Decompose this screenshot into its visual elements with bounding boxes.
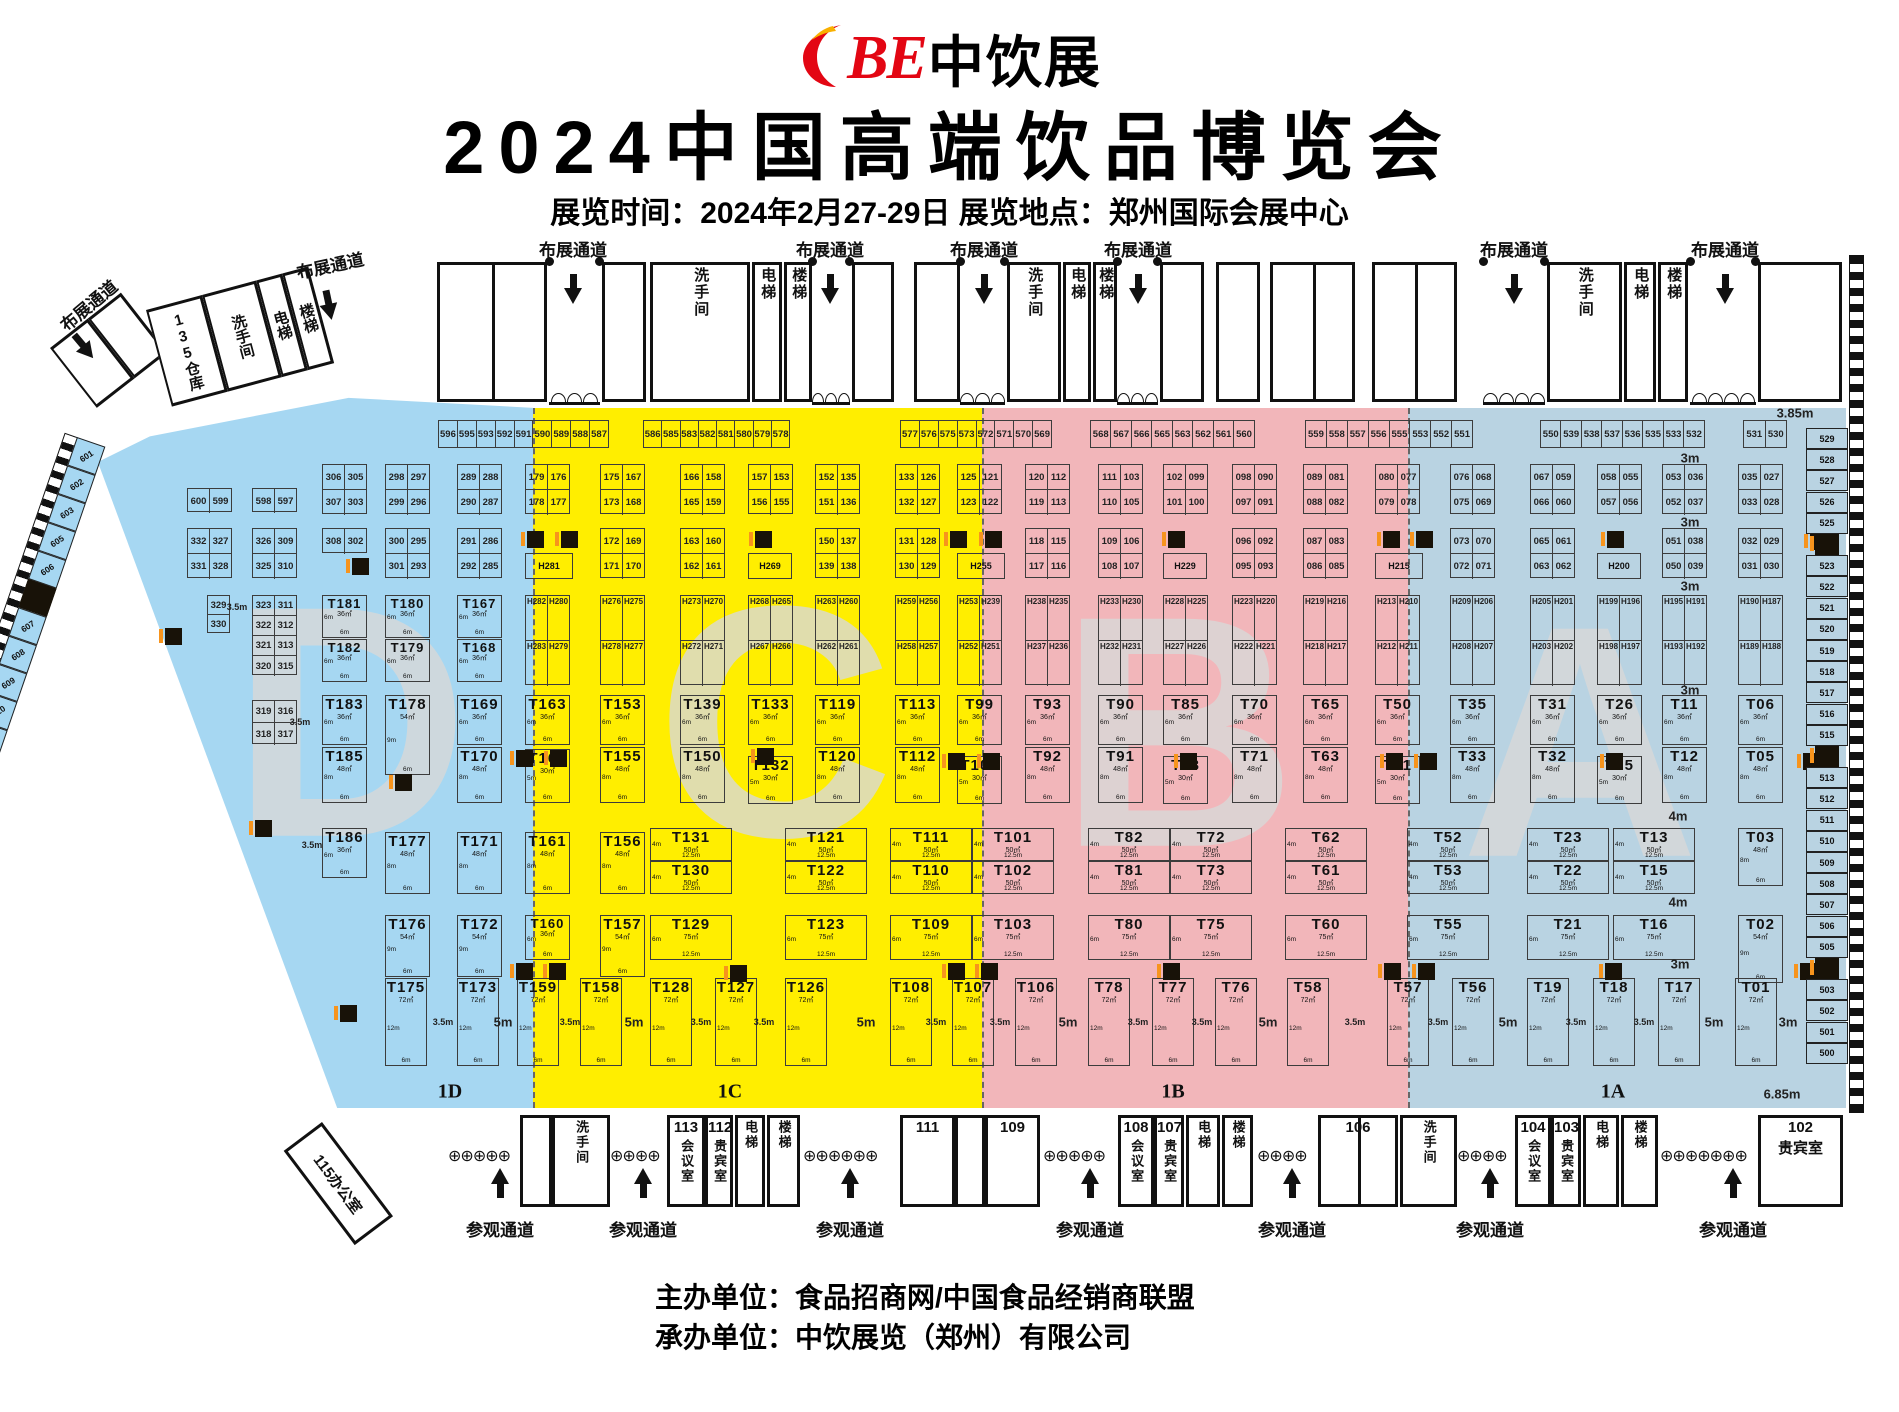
booth-depth: 4m xyxy=(1409,841,1418,848)
booth-area: 72㎡ xyxy=(891,997,931,1004)
booth-H193: H193 xyxy=(1663,641,1685,686)
booth-172: 172 xyxy=(601,529,623,553)
passage-label-setup: 布展通道 xyxy=(539,236,607,261)
booth-137: 137 xyxy=(838,529,859,553)
room-number: 108 xyxy=(1121,1120,1151,1137)
pillar-icon xyxy=(395,774,412,791)
booth-H268: H268 xyxy=(749,596,771,640)
booth-frontage: 12.5m xyxy=(1408,885,1488,892)
booth-081: 081 xyxy=(1326,465,1347,489)
booth-590: 590 xyxy=(533,421,552,447)
booth-117: 117 xyxy=(1026,554,1048,579)
booth-T63: T6348㎡8m6m xyxy=(1303,747,1348,803)
booth-number: T73 xyxy=(1171,863,1251,880)
booth-depth: 8m xyxy=(1740,774,1749,781)
booth-frontage: 6m xyxy=(1099,736,1142,743)
booth-T128: T12872㎡12m6m xyxy=(650,978,692,1066)
booth-066: 066 xyxy=(1531,490,1553,515)
booth-block: 308302 xyxy=(322,528,367,553)
booth-area: 72㎡ xyxy=(518,997,558,1004)
booth-529: 529 xyxy=(1806,428,1848,449)
booth-number: T32 xyxy=(1531,749,1574,766)
booth-frontage: 6m xyxy=(651,1057,691,1064)
aisle-dimension: 3m xyxy=(1671,957,1690,972)
booth-133: 133 xyxy=(896,465,918,489)
pillar-icon xyxy=(549,963,566,980)
booth-strip: 596595593592591590589588587 xyxy=(438,420,609,448)
room-label: 楼梯 xyxy=(1230,1120,1244,1150)
booth-frontage: 12.5m xyxy=(1286,951,1366,958)
booth-depth: 6m xyxy=(602,719,611,726)
booth-323: 323 xyxy=(253,596,275,615)
arrow-up-icon xyxy=(1724,1168,1742,1184)
booth-055: 055 xyxy=(1620,465,1641,489)
booth-028: 028 xyxy=(1761,490,1782,515)
booth-frontage: 6m xyxy=(323,794,366,801)
booth-depth: 6m xyxy=(1409,936,1418,943)
booth-136: 136 xyxy=(838,490,859,515)
booth-T06: T0636㎡6m6m xyxy=(1738,695,1783,745)
booth-block: 125121123122 xyxy=(957,464,1002,514)
booth-T111: T11150㎡4m12.5m xyxy=(890,828,972,861)
booth-block: 150137139138 xyxy=(815,528,860,578)
booth-171: 171 xyxy=(601,554,623,579)
booth-depth: 6m xyxy=(974,936,983,943)
booth-H203: H203 xyxy=(1531,641,1553,686)
booth-H273: H273 xyxy=(681,596,703,640)
booth-H231: H231 xyxy=(1121,641,1142,686)
booth-T19: T1972㎡12m6m xyxy=(1527,978,1569,1066)
booth-T155: T15548㎡8m6m xyxy=(600,747,645,803)
booth-number: T81 xyxy=(1089,863,1169,880)
room-number: 107 xyxy=(1157,1120,1181,1137)
booth-093: 093 xyxy=(1255,554,1276,579)
booth-557: 557 xyxy=(1348,421,1369,447)
booth-165: 165 xyxy=(681,490,703,515)
pillar-icon xyxy=(985,531,1002,548)
arrow-down-icon xyxy=(564,288,582,304)
booth-108: 108 xyxy=(1099,554,1121,579)
booth-number: T180 xyxy=(386,597,429,611)
booth-area: 48㎡ xyxy=(1739,766,1782,773)
booth-area: 30㎡ xyxy=(526,768,569,775)
booth-T11: T1136㎡6m6m xyxy=(1662,695,1707,745)
booth-517: 517 xyxy=(1806,682,1848,703)
booth-depth: 4m xyxy=(1287,841,1296,848)
booth-depth: 8m xyxy=(459,774,468,781)
booth-depth: 9m xyxy=(459,946,468,953)
booth-T169: T16936㎡6m6m xyxy=(457,695,502,745)
booth-T62: T6250㎡4m12.5m xyxy=(1285,828,1367,861)
booth-number: T55 xyxy=(1408,917,1488,934)
booth-H187: H187 xyxy=(1761,596,1782,640)
booth-number: T33 xyxy=(1451,749,1494,766)
booth-H230: H230 xyxy=(1121,596,1142,640)
booth-526: 526 xyxy=(1806,492,1848,513)
booth-frontage: 6m xyxy=(1531,794,1574,801)
pillar-icon xyxy=(948,963,965,980)
booth-depth: 6m xyxy=(817,719,826,726)
booth-depth: 8m xyxy=(1532,774,1541,781)
booth-block: 175167173168 xyxy=(600,464,645,514)
booth-frontage: 6m xyxy=(681,794,724,801)
booth-530: 530 xyxy=(1766,421,1787,447)
room-楼梯: 楼梯 xyxy=(1621,1115,1658,1207)
booth-579: 579 xyxy=(754,421,772,447)
booth-031: 031 xyxy=(1739,554,1761,579)
aisle-dimension: 5m xyxy=(1059,1015,1078,1030)
booth-area: 75㎡ xyxy=(1614,934,1694,941)
booth-H211: H211 xyxy=(1398,641,1419,686)
booth-051: 051 xyxy=(1663,529,1685,553)
booth-T90: T9036㎡6m6m xyxy=(1098,695,1143,745)
booth-depth: 6m xyxy=(892,936,901,943)
booth-320: 320 xyxy=(253,656,275,676)
booth-depth: 8m xyxy=(324,774,333,781)
booth-number: T107 xyxy=(953,980,993,997)
booth-number: T91 xyxy=(1099,749,1142,766)
booth-frontage: 6m xyxy=(681,736,724,743)
arrow-down-icon xyxy=(1716,288,1734,304)
booth-depth: 4m xyxy=(892,841,901,848)
hall-label-1A: 1A xyxy=(1601,1081,1625,1104)
booth-T163: T16336㎡6m6m xyxy=(525,695,570,745)
booth-area: 48㎡ xyxy=(601,851,644,858)
room-empty xyxy=(1270,262,1355,402)
booth-061: 061 xyxy=(1553,529,1574,553)
booth-T50: T5036㎡6m6m xyxy=(1375,695,1420,745)
booth-number: T161 xyxy=(526,834,569,851)
booth-570: 570 xyxy=(1014,421,1033,447)
booth-535: 535 xyxy=(1643,421,1663,447)
booth-123: 123 xyxy=(958,490,980,515)
booth-511: 511 xyxy=(1806,810,1848,831)
booth-T76: T7672㎡12m6m xyxy=(1215,978,1257,1066)
booth-area: 75㎡ xyxy=(1089,934,1169,941)
booth-115: 115 xyxy=(1048,529,1069,553)
booth-071: 071 xyxy=(1473,554,1494,579)
booth-depth: 6m xyxy=(387,658,396,665)
booth-frontage: 6m xyxy=(526,885,569,892)
room-label: 135仓库 xyxy=(168,310,204,392)
booth-T175: T17572㎡12m6m xyxy=(385,978,427,1066)
booth-083: 083 xyxy=(1326,529,1347,553)
booth-078: 078 xyxy=(1398,490,1419,515)
booth-110: 110 xyxy=(1099,490,1121,515)
booth-302: 302 xyxy=(345,529,366,554)
booth-162: 162 xyxy=(681,554,703,579)
aisle-dimension: 4m xyxy=(1669,809,1688,824)
booth-311: 311 xyxy=(275,596,296,615)
booth-block: H219H216H218H217 xyxy=(1303,595,1348,685)
logo-be-text: BE xyxy=(847,23,926,94)
booth-depth: 12m xyxy=(1289,1025,1302,1032)
booth-frontage: 12.5m xyxy=(973,951,1053,958)
booth-318: 318 xyxy=(253,723,275,745)
room-104: 104会议室 xyxy=(1515,1115,1551,1207)
booth-059: 059 xyxy=(1553,465,1574,489)
booth-number: T85 xyxy=(1164,697,1207,714)
room-洗手间: 洗手间 xyxy=(1547,262,1622,402)
passage-label-visitor: 参观通道 xyxy=(1056,1216,1124,1241)
booth-number: T18 xyxy=(1594,980,1634,997)
booth-100: 100 xyxy=(1186,490,1207,515)
room-洗手间: 洗手间 xyxy=(1400,1115,1457,1207)
booth-frontage: 12.5m xyxy=(1528,885,1608,892)
booth-number: T13 xyxy=(1614,830,1694,847)
booth-number: T58 xyxy=(1288,980,1328,997)
booth-053: 053 xyxy=(1663,465,1685,489)
aisle-dimension: 4m xyxy=(1669,895,1688,910)
booth-563: 563 xyxy=(1173,421,1193,447)
aisle-dimension: 6.85m xyxy=(1764,1087,1801,1102)
pillar-icon xyxy=(981,963,998,980)
booth-156: 156 xyxy=(749,490,771,515)
booth-depth: 6m xyxy=(527,936,536,943)
booth-frontage: 6m xyxy=(749,736,792,743)
booth-block: 289288290287 xyxy=(457,464,502,514)
booth-T61: T6150㎡4m12.5m xyxy=(1285,861,1367,894)
room-电梯: 电梯 xyxy=(1583,1115,1619,1207)
booth-099: 099 xyxy=(1186,465,1207,489)
booth-frontage: 6m xyxy=(526,951,569,958)
booth-number: T108 xyxy=(891,980,931,997)
room-empty xyxy=(520,1115,552,1207)
logo: BE 中饮展 xyxy=(0,18,1899,99)
booth-077: 077 xyxy=(1398,465,1419,489)
room-label: 电梯 xyxy=(270,309,293,342)
booth-depth: 5m xyxy=(1377,779,1386,786)
booth-116: 116 xyxy=(1048,554,1069,579)
booth-frontage: 6m xyxy=(816,736,859,743)
booth-frontage: 6m xyxy=(1739,794,1782,801)
booth-518: 518 xyxy=(1806,661,1848,682)
floorplan-poster: BE 中饮展 2024中国高端饮品博览会 展览时间：2024年2月27-29日 … xyxy=(0,0,1899,1412)
booth-295: 295 xyxy=(408,529,429,553)
booth-area: 48㎡ xyxy=(816,766,859,773)
booth-area: 48㎡ xyxy=(386,851,429,858)
booth-depth: 12m xyxy=(717,1025,730,1032)
booth-number: T131 xyxy=(651,830,731,847)
aisle-dimension: 3m xyxy=(1779,1015,1798,1030)
pillar-icon xyxy=(340,1005,357,1022)
booth-frontage: 6m xyxy=(1451,794,1494,801)
booth-330: 330 xyxy=(208,615,229,634)
booth-072: 072 xyxy=(1451,554,1473,579)
booth-H205: H205 xyxy=(1531,596,1553,640)
booth-number: T26 xyxy=(1598,697,1641,714)
booth-area: 48㎡ xyxy=(896,766,939,773)
booth-number: T102 xyxy=(973,863,1053,880)
booth-block: H253H239H252H251 xyxy=(957,595,1002,685)
booth-frontage: 6m xyxy=(786,1057,826,1064)
booth-299: 299 xyxy=(386,490,408,515)
booth-number: T71 xyxy=(1233,749,1276,766)
booth-T18: T1872㎡12m6m xyxy=(1593,978,1635,1066)
booth-569: 569 xyxy=(1033,421,1051,447)
booth-number: T121 xyxy=(786,830,866,847)
organizer-line: 主办单位：食品招商网/中国食品经销商联盟 xyxy=(655,1276,1195,1316)
room-label: 洗手间 xyxy=(1576,267,1593,318)
booth-523: 523 xyxy=(1806,555,1848,576)
booth-H259: H259 xyxy=(896,596,918,640)
booth-area: 72㎡ xyxy=(716,997,756,1004)
booth-H192: H192 xyxy=(1685,641,1706,686)
booth-depth: 6m xyxy=(959,719,968,726)
booth-T03: T0348㎡8m6m xyxy=(1738,828,1783,886)
booth-depth: 4m xyxy=(1409,874,1418,881)
booth-depth: 8m xyxy=(1100,774,1109,781)
booth-depth: 12m xyxy=(519,1025,532,1032)
booth-097: 097 xyxy=(1233,490,1255,515)
booth-block: 098090097091 xyxy=(1232,464,1277,514)
booth-depth: 4m xyxy=(1090,874,1099,881)
booth-area: 72㎡ xyxy=(651,997,691,1004)
booth-062: 062 xyxy=(1553,554,1574,579)
aisle-dimension: 3m xyxy=(1681,451,1700,466)
room-112: 112贵宾室 xyxy=(705,1115,733,1207)
booth-556: 556 xyxy=(1369,421,1390,447)
passage-label-visitor: 参观通道 xyxy=(466,1216,534,1241)
booth-frontage: 6m xyxy=(716,1057,756,1064)
booth-T121: T12150㎡4m12.5m xyxy=(785,828,867,861)
booth-T170: T17048㎡8m6m xyxy=(457,747,502,803)
booth-578: 578 xyxy=(772,421,789,447)
booth-frontage: 12.5m xyxy=(651,885,731,892)
booth-125: 125 xyxy=(958,465,980,489)
booth-frontage: 12.5m xyxy=(1286,885,1366,892)
booth-number: T56 xyxy=(1453,980,1493,997)
booth-H255: H255 xyxy=(957,553,1005,579)
booth-depth: 6m xyxy=(1740,719,1749,726)
booth-568: 568 xyxy=(1091,421,1111,447)
booth-H262: H262 xyxy=(816,641,838,686)
booth-number: T110 xyxy=(891,863,971,880)
booth-T120: T12048㎡8m6m xyxy=(815,747,860,803)
booth-frontage: 6m xyxy=(526,736,569,743)
booth-H216: H216 xyxy=(1326,596,1347,640)
booth-H228: H228 xyxy=(1164,596,1186,640)
joint-chain-icon: ⊕⊕⊕⊕ xyxy=(1257,1146,1318,1166)
room-label: 楼梯 xyxy=(790,267,807,301)
aisle-dimension: 3.5m xyxy=(1128,1017,1149,1027)
booth-block: 323311322312321313320315 xyxy=(252,595,297,675)
booth-H210: H210 xyxy=(1398,596,1419,640)
booth-block: H195H191H193H192 xyxy=(1662,595,1707,685)
booth-139: 139 xyxy=(816,554,838,579)
room-label: 楼梯 xyxy=(776,1120,790,1150)
booth-T171: T17148㎡8m6m xyxy=(457,832,502,894)
aisle-dimension: 5m xyxy=(1705,1015,1724,1030)
room-label: 洗手间 xyxy=(228,312,255,360)
booth-area: 48㎡ xyxy=(1026,766,1069,773)
room-107: 107贵宾室 xyxy=(1154,1115,1184,1207)
angled-room-group: 135仓库洗手间电梯楼梯 xyxy=(146,267,334,407)
booth-560: 560 xyxy=(1234,421,1253,447)
booth-322: 322 xyxy=(253,616,275,635)
booth-depth: 6m xyxy=(897,719,906,726)
booth-block: 332327331328 xyxy=(187,528,232,578)
booth-area: 75㎡ xyxy=(1171,934,1251,941)
room-empty xyxy=(1160,262,1204,402)
room-number: 112 xyxy=(708,1120,730,1137)
booth-area: 75㎡ xyxy=(973,934,1053,941)
room-label: 电梯 xyxy=(759,267,776,301)
pillar-icon xyxy=(516,750,533,767)
outer-wall-hatch xyxy=(1849,255,1864,1113)
booth-strip: 577576575573572571570569 xyxy=(900,420,1052,448)
passage-label-setup: 布展通道 xyxy=(796,236,864,261)
booth-number: T170 xyxy=(458,749,501,766)
booth-area: 48㎡ xyxy=(1451,766,1494,773)
booth-depth: 8m xyxy=(602,774,611,781)
aisle-dimension: 5m xyxy=(857,1015,876,1030)
booth-depth: 4m xyxy=(1529,874,1538,881)
booth-depth: 6m xyxy=(459,658,468,665)
room-111: 111 xyxy=(900,1115,955,1207)
booth-T57: T5772㎡12m6m xyxy=(1387,978,1429,1066)
booth-number: T106 xyxy=(1016,980,1056,997)
booth-H222: H222 xyxy=(1233,641,1255,686)
booth-depth: 12m xyxy=(1737,1025,1750,1032)
booth-number: T127 xyxy=(716,980,756,997)
booth-T22: T2250㎡4m12.5m xyxy=(1527,861,1609,894)
booth-H238: H238 xyxy=(1026,596,1048,640)
booth-frontage: 6m xyxy=(581,1057,621,1064)
booth-block: 131128130129 xyxy=(895,528,940,578)
booth-number: T52 xyxy=(1408,830,1488,847)
booth-area: 75㎡ xyxy=(1528,934,1608,941)
booth-082: 082 xyxy=(1326,490,1347,515)
booth-332: 332 xyxy=(188,529,210,553)
booth-T35: T3536㎡6m6m xyxy=(1450,695,1495,745)
booth-325: 325 xyxy=(253,554,275,579)
booth-576: 576 xyxy=(920,421,939,447)
booth-frontage: 12.5m xyxy=(1089,951,1169,958)
pillar-icon xyxy=(1168,531,1185,548)
booth-T131: T13150㎡4m12.5m xyxy=(650,828,732,861)
booth-frontage: 12.5m xyxy=(1408,852,1488,859)
booth-number: T12 xyxy=(1663,749,1706,766)
booth-area: 72㎡ xyxy=(386,997,426,1004)
booth-depth: 6m xyxy=(324,614,333,621)
booth-571: 571 xyxy=(995,421,1014,447)
booth-H251: H251 xyxy=(980,641,1001,686)
booth-number: T156 xyxy=(601,834,644,851)
booth-T52: T5250㎡4m12.5m xyxy=(1407,828,1489,861)
booth-block: 065061063062 xyxy=(1530,528,1575,578)
booth-depth: 6m xyxy=(1027,719,1036,726)
booth-depth: 8m xyxy=(527,863,536,870)
room-label: 电梯 xyxy=(743,1120,757,1150)
booth-536: 536 xyxy=(1623,421,1643,447)
booth-158: 158 xyxy=(703,465,724,489)
room-empty xyxy=(1758,262,1842,402)
booth-T33: T3348㎡8m6m xyxy=(1450,747,1495,803)
booth-area: 72㎡ xyxy=(1288,997,1328,1004)
booth-block: H259H256H258H257 xyxy=(895,595,940,685)
booth-number: T76 xyxy=(1216,980,1256,997)
room-楼梯: 楼梯 xyxy=(767,1115,800,1207)
room-empty xyxy=(1372,262,1457,402)
booth-H217: H217 xyxy=(1326,641,1347,686)
booth-288: 288 xyxy=(480,465,501,489)
booth-131: 131 xyxy=(896,529,918,553)
booth-frontage: 12.5m xyxy=(651,951,731,958)
pillar-icon xyxy=(255,820,272,837)
arrow-up-icon xyxy=(634,1168,652,1184)
room-洗手间: 洗手间 xyxy=(552,1115,610,1207)
